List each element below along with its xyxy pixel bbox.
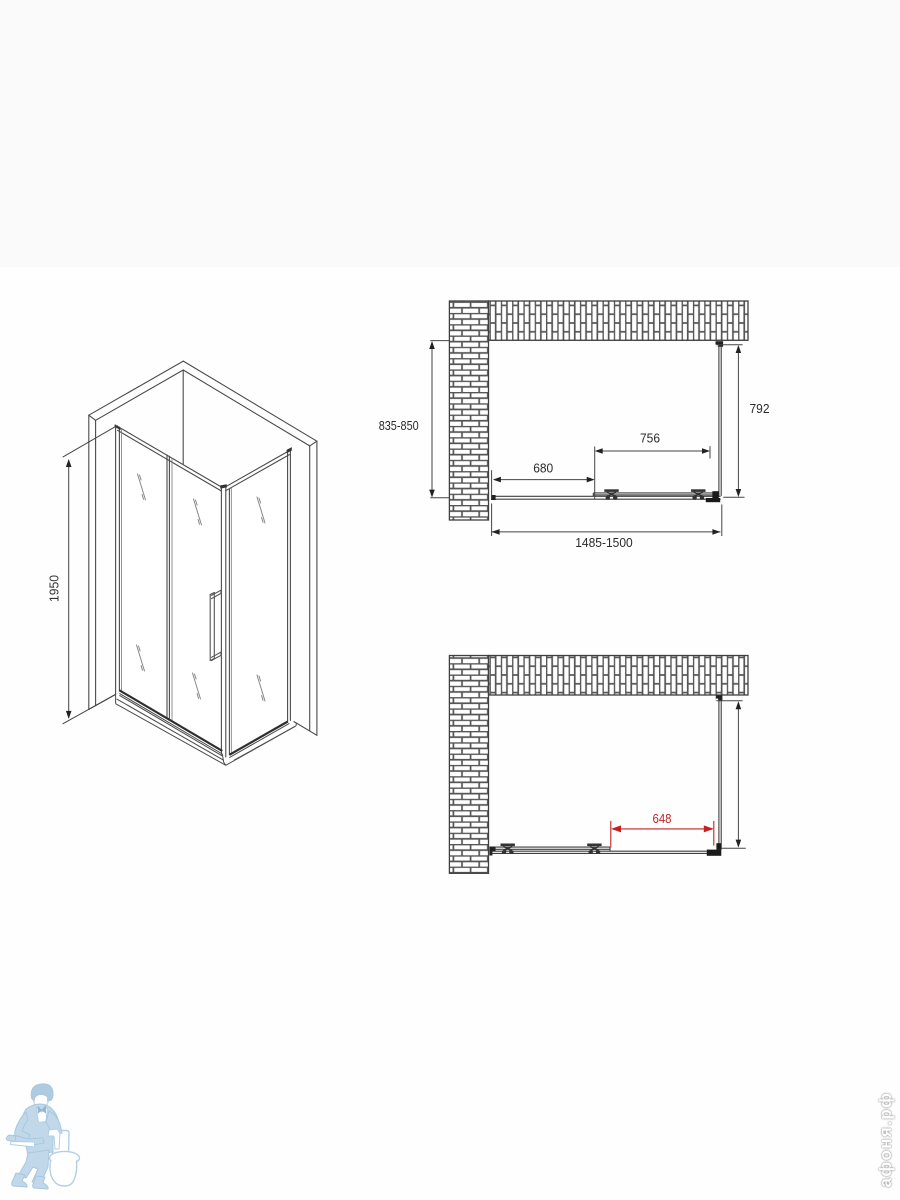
svg-text:648: 648 xyxy=(653,812,672,826)
svg-text:680: 680 xyxy=(533,460,553,475)
svg-text:835-850: 835-850 xyxy=(379,418,419,433)
svg-text:1950: 1950 xyxy=(47,575,62,602)
svg-text:792: 792 xyxy=(750,401,770,416)
svg-text:1485-1500: 1485-1500 xyxy=(575,535,633,550)
svg-text:756: 756 xyxy=(640,430,660,445)
